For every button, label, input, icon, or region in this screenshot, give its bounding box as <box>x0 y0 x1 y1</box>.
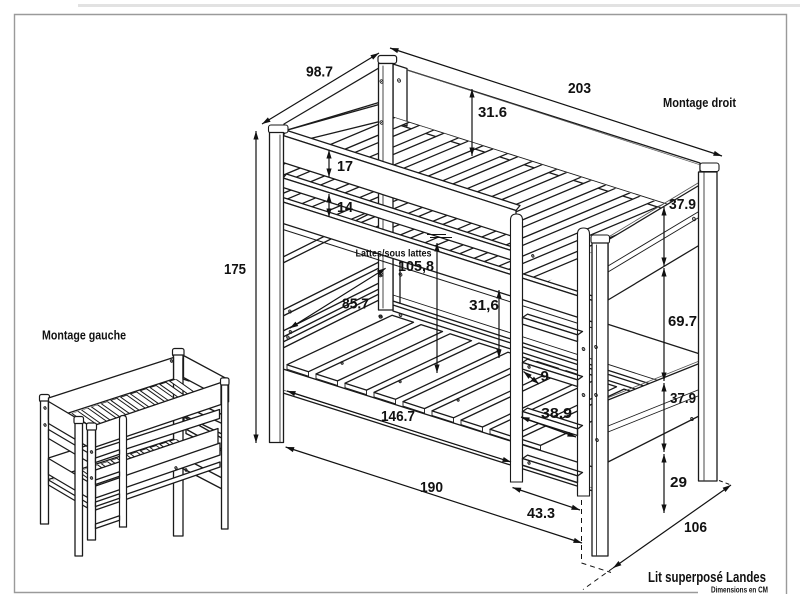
svg-text:175: 175 <box>224 261 246 278</box>
svg-text:203: 203 <box>568 80 591 97</box>
svg-text:37.9: 37.9 <box>669 196 696 213</box>
svg-text:105,8: 105,8 <box>398 258 434 275</box>
svg-text:Dimensions en CM: Dimensions en CM <box>711 585 768 595</box>
svg-text:43.3: 43.3 <box>527 505 555 522</box>
svg-text:14: 14 <box>337 199 354 216</box>
svg-text:190: 190 <box>420 479 443 496</box>
svg-text:9: 9 <box>541 368 549 385</box>
svg-text:31,6: 31,6 <box>469 297 499 314</box>
svg-text:17: 17 <box>337 158 353 175</box>
svg-text:85.7: 85.7 <box>342 296 369 313</box>
svg-text:146.7: 146.7 <box>381 408 415 425</box>
svg-text:Montage droit: Montage droit <box>663 95 737 110</box>
svg-text:106: 106 <box>684 519 707 536</box>
svg-text:69.7: 69.7 <box>668 313 697 330</box>
svg-text:37.9: 37.9 <box>670 390 696 407</box>
svg-text:98.7: 98.7 <box>306 64 333 81</box>
svg-text:38.9: 38.9 <box>541 405 572 422</box>
svg-text:31.6: 31.6 <box>478 104 507 121</box>
svg-text:29: 29 <box>670 474 687 491</box>
svg-text:Montage gauche: Montage gauche <box>42 328 126 343</box>
